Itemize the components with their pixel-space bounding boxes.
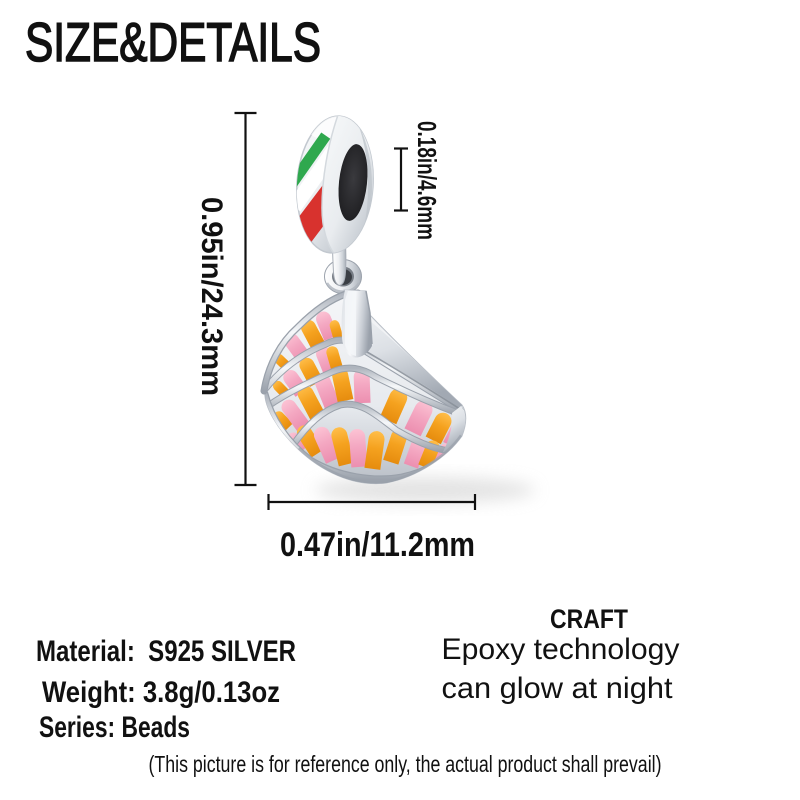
svg-text:SIZE&DETAILS: SIZE&DETAILS — [25, 11, 321, 73]
svg-text:Series: Beads: Series: Beads — [39, 711, 190, 744]
svg-text:0.95in/24.3mm: 0.95in/24.3mm — [195, 197, 228, 396]
svg-text:Weight: 3.8g/0.13oz: Weight: 3.8g/0.13oz — [42, 676, 280, 709]
svg-text:CRAFT: CRAFT — [550, 604, 628, 634]
svg-text:can glow at night: can glow at night — [442, 672, 674, 705]
svg-text:0.18in/4.6mm: 0.18in/4.6mm — [412, 121, 442, 240]
svg-text:0.47in/11.2mm: 0.47in/11.2mm — [280, 526, 475, 564]
svg-text:Epoxy technology: Epoxy technology — [442, 633, 680, 666]
svg-text:(This picture is for reference: (This picture is for reference only, the… — [149, 751, 662, 777]
svg-text:Material: S925 SILVER: Material: S925 SILVER — [36, 635, 296, 668]
